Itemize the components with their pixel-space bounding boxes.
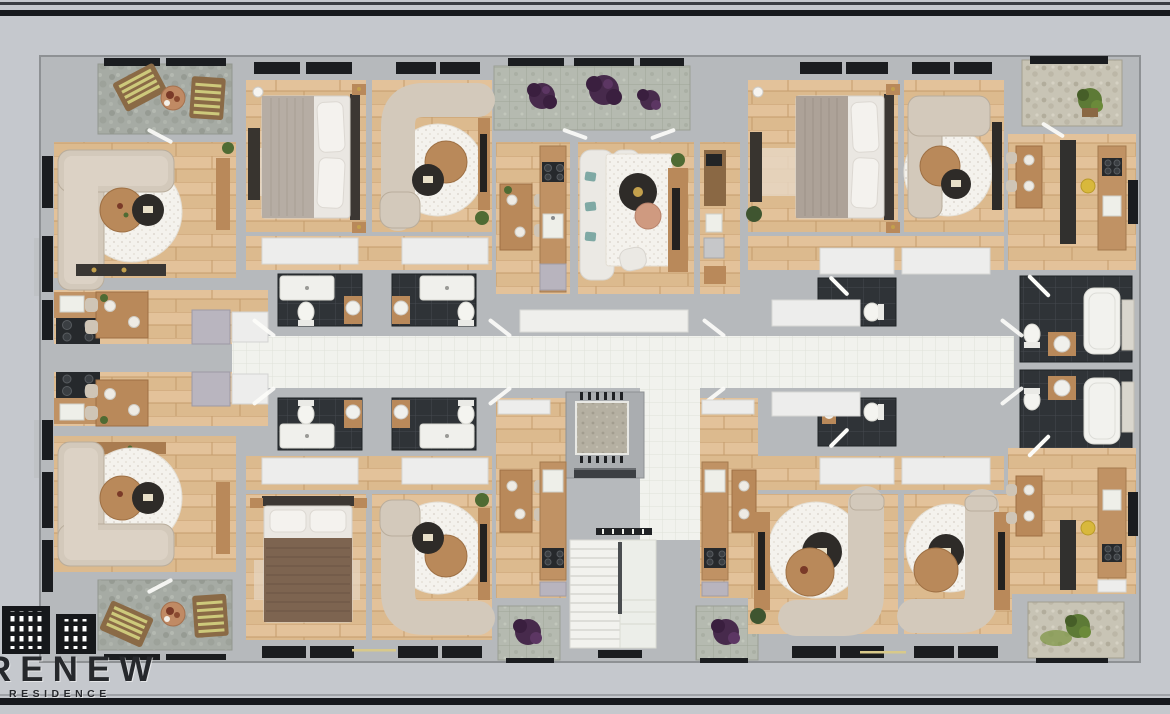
floor-plan-render: RENEW RESIDENCE: [0, 0, 1170, 714]
balcony-table: [161, 86, 185, 110]
cabinet: [192, 310, 230, 344]
wardrobe: [262, 238, 358, 264]
kitchen-counter: [702, 462, 728, 596]
plant: [475, 211, 489, 225]
corridor: [232, 336, 1014, 388]
console: [216, 158, 230, 230]
brand-name: RENEW: [0, 650, 161, 690]
plant: [750, 608, 766, 624]
stair-rail: [596, 528, 652, 535]
kitchen-counter: [540, 146, 566, 292]
plant: [222, 142, 234, 154]
side-table-salmon: [635, 203, 661, 229]
wardrobe: [402, 458, 488, 484]
dresser: [248, 128, 260, 200]
frame-top-bars: [0, 2, 1170, 16]
toilet: [864, 303, 880, 321]
nightstand: [354, 498, 367, 508]
plant: [475, 493, 489, 507]
elevator: [566, 392, 644, 478]
balcony-table: [161, 602, 185, 626]
dining-table: [732, 470, 756, 532]
stool: [1081, 521, 1095, 535]
wardrobe: [820, 248, 894, 274]
lounger: [189, 76, 226, 120]
bed: [796, 94, 894, 220]
wardrobe: [902, 248, 990, 274]
pendant-lamp: [253, 87, 263, 97]
bed: [262, 496, 354, 622]
cabinet: [192, 372, 230, 406]
bed: [262, 94, 360, 220]
lounger: [192, 594, 229, 638]
coffee-table-wood: [786, 548, 834, 596]
wardrobe: [262, 458, 358, 484]
floor-plan-image: [0, 0, 1170, 714]
hall-cabinet: [520, 310, 688, 332]
stair-hall: [640, 388, 700, 540]
coffee-table-wood: [914, 548, 958, 592]
hall-cabinet: [772, 300, 860, 326]
brand-subtitle: RESIDENCE: [9, 688, 111, 700]
tv-panel: [992, 122, 1002, 210]
console: [216, 482, 230, 554]
toilet: [864, 403, 880, 421]
plant: [671, 153, 685, 167]
wardrobe: [902, 458, 990, 484]
stool: [1081, 179, 1095, 193]
nightstand: [250, 498, 263, 508]
dresser: [750, 132, 762, 202]
wardrobe: [820, 458, 894, 484]
wardrobe: [402, 238, 488, 264]
plant: [746, 206, 762, 222]
balcony-top-right: [1022, 60, 1122, 126]
hall-cabinet: [772, 392, 860, 416]
frame-bottom-bars: [0, 694, 1170, 705]
pendant-lamp: [753, 87, 763, 97]
staircase: [570, 528, 656, 648]
kitchen-counter: [540, 462, 566, 596]
toilet: [1024, 324, 1040, 344]
sideboard-dark: [76, 264, 166, 276]
buildings-icon: [0, 604, 120, 656]
